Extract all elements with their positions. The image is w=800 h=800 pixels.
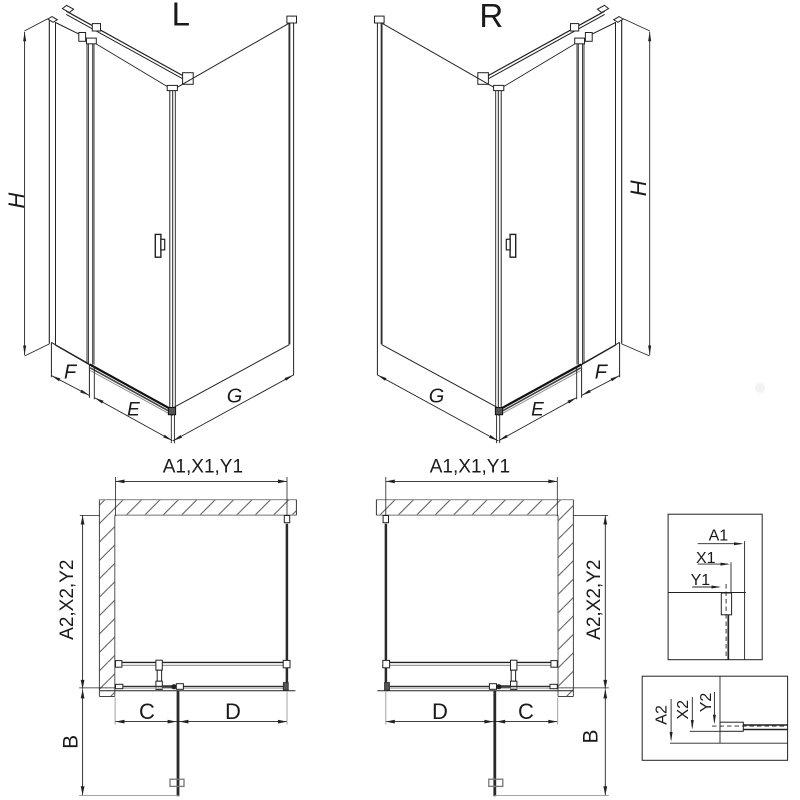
svg-text:Y2: Y2 — [698, 693, 715, 713]
svg-text:L: L — [172, 0, 190, 33]
svg-text:A1: A1 — [709, 528, 729, 545]
svg-text:Y1: Y1 — [691, 572, 711, 589]
svg-text:B: B — [579, 729, 602, 743]
svg-text:H: H — [626, 180, 651, 196]
svg-text:A1,X1,Y1: A1,X1,Y1 — [163, 456, 243, 477]
svg-text:H: H — [4, 192, 29, 208]
svg-text:E: E — [127, 400, 140, 421]
svg-text:F: F — [595, 362, 609, 384]
svg-text:G: G — [429, 385, 445, 407]
svg-text:A2,X2,Y2: A2,X2,Y2 — [57, 560, 78, 640]
svg-text:G: G — [227, 385, 243, 407]
svg-text:F: F — [64, 362, 78, 384]
svg-text:D: D — [225, 699, 241, 724]
svg-text:C: C — [518, 699, 534, 724]
svg-text:B: B — [60, 735, 83, 749]
svg-text:X2: X2 — [675, 700, 692, 720]
svg-text:A2: A2 — [654, 705, 671, 725]
svg-text:E: E — [531, 400, 544, 421]
svg-text:C: C — [139, 699, 155, 724]
svg-text:A1,X1,Y1: A1,X1,Y1 — [430, 456, 510, 477]
svg-text:R: R — [479, 0, 503, 34]
svg-text:D: D — [432, 699, 448, 724]
svg-text:A2,X2,Y2: A2,X2,Y2 — [584, 560, 605, 640]
